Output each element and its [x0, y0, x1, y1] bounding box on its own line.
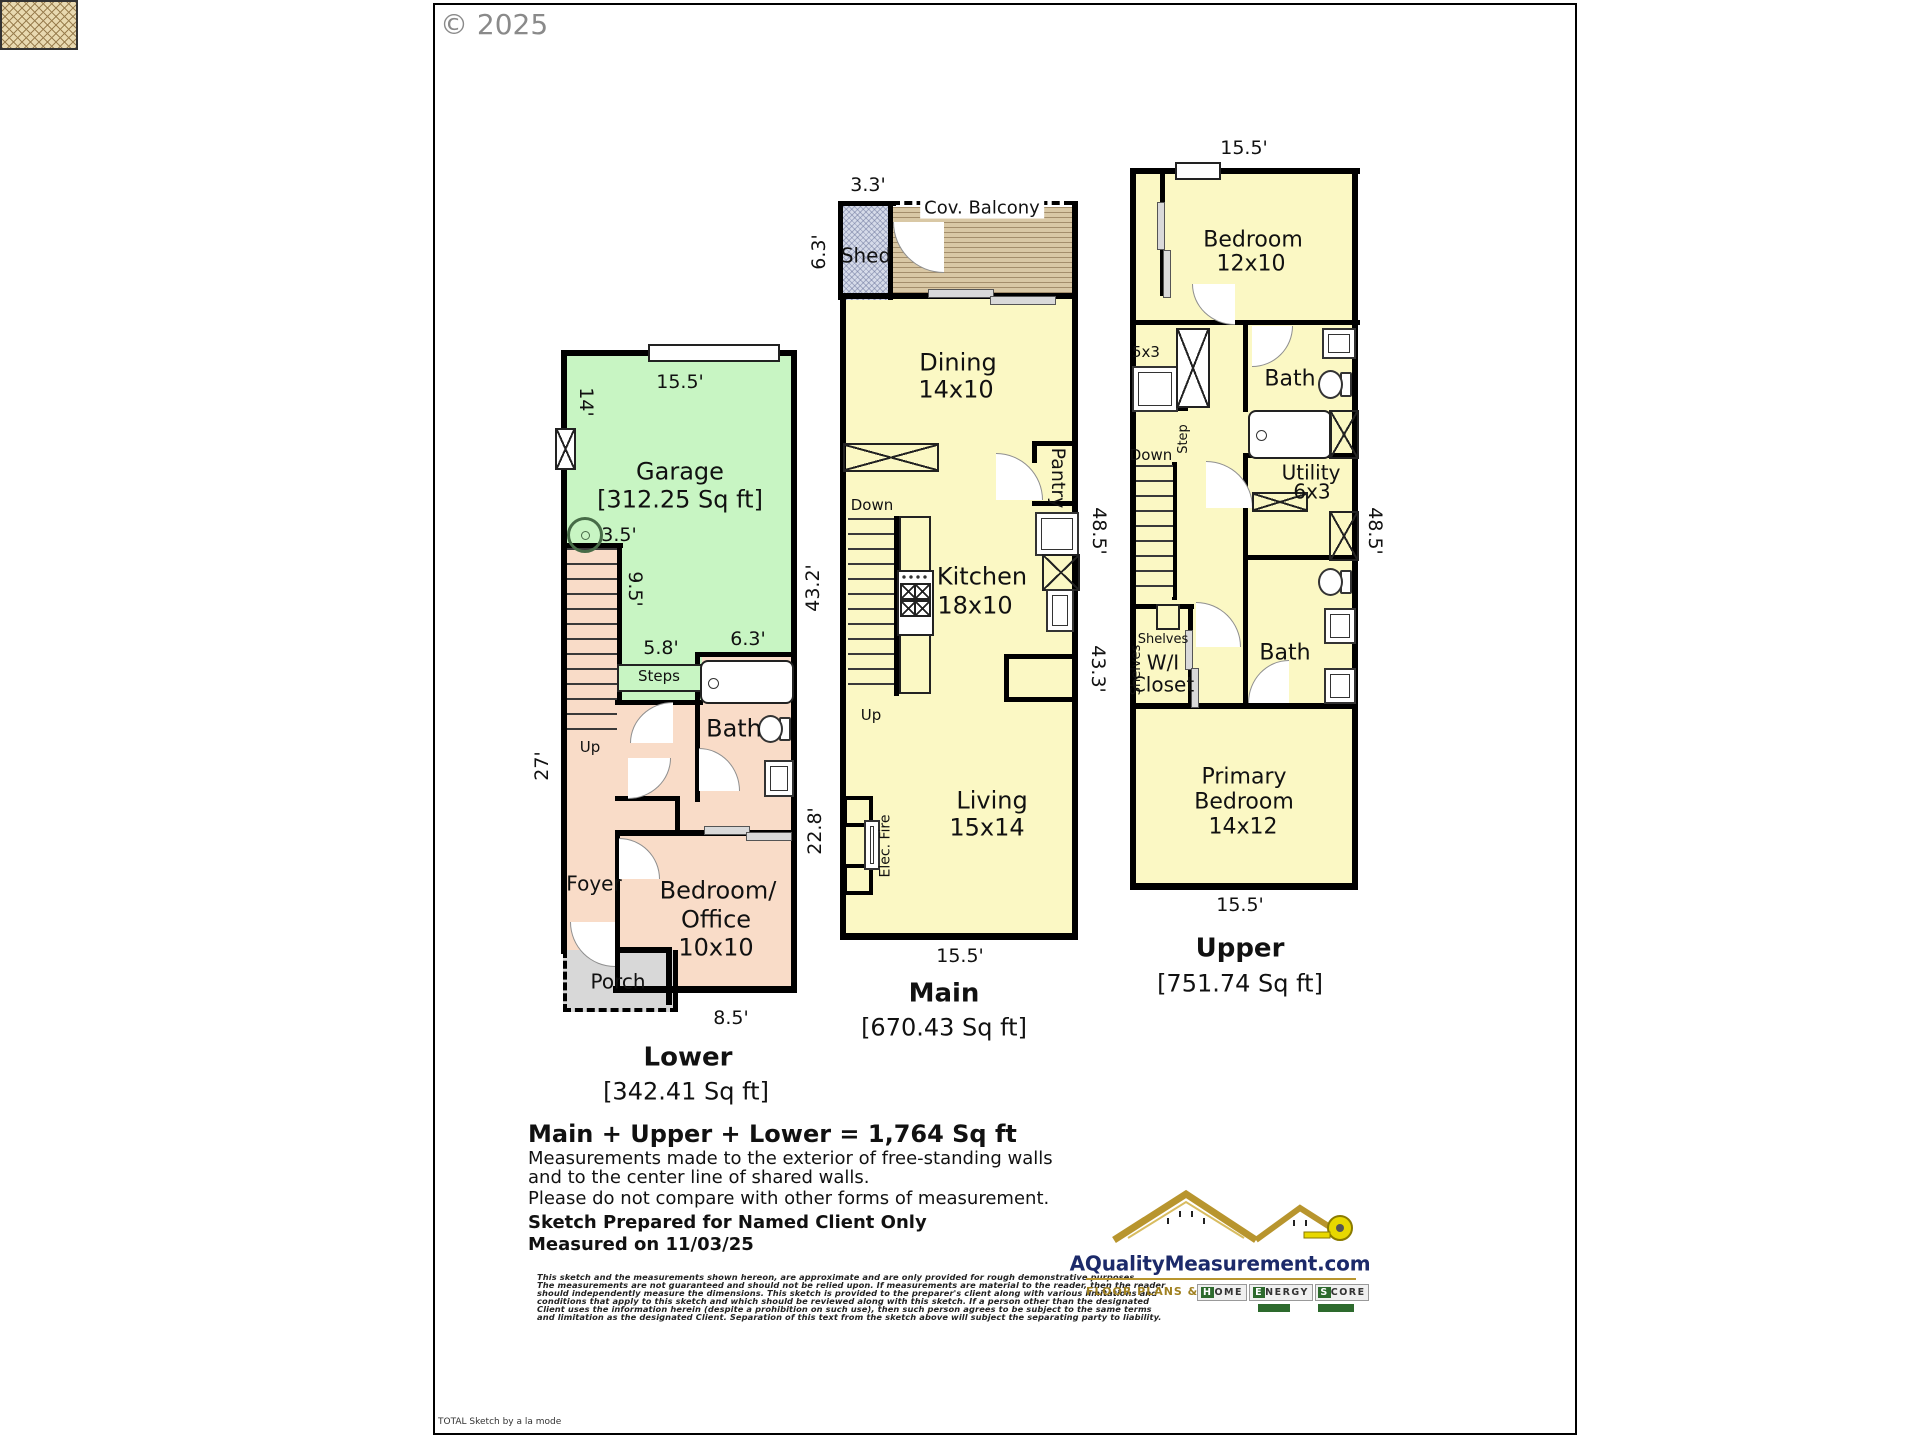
dim-label: 6.3' [810, 234, 830, 269]
room-label-primary: Bedroom [1194, 790, 1294, 813]
wall [1130, 883, 1358, 890]
wall [1032, 441, 1078, 446]
room-label-shed: Shed [841, 246, 891, 267]
room-size-label: 18x10 [937, 593, 1012, 618]
burner-icon [914, 583, 931, 600]
wall [666, 947, 672, 1005]
dim-label: 8.5' [713, 1009, 748, 1029]
floorplan-sketch-page: © 2025 15.5' 14' Garage [312.25 Sq ft] 3… [0, 0, 1920, 1440]
logo-tagline: FLOOR PLANS & [1086, 1285, 1198, 1298]
dim-label: 48.5' [1088, 507, 1108, 555]
room-label-porch: Porch [590, 972, 645, 993]
dim-label: 3.5' [601, 526, 636, 546]
wall [1243, 555, 1248, 705]
step-label: Step [1177, 424, 1191, 454]
disclaimer-line: and limitation as the designated Client.… [537, 1313, 1162, 1321]
room-label-dining: Dining [919, 350, 996, 375]
counter-cabinet-icon [843, 443, 939, 472]
vanity-sink-icon [1324, 668, 1356, 704]
wall [695, 652, 797, 657]
wall [610, 947, 672, 953]
upper-stairs [1136, 465, 1173, 597]
plan-title-upper: Upper [1196, 935, 1285, 962]
garage-area-label: [312.25 Sq ft] [597, 487, 763, 512]
wall [840, 293, 846, 940]
vanity-sink-icon [764, 760, 794, 797]
measurement-note: and to the center line of shared walls. [528, 1167, 869, 1188]
burner-icon [914, 600, 931, 617]
dim-label: 48.5' [1364, 507, 1384, 555]
vanity-sink-icon [1322, 328, 1356, 359]
room-label-kitchen: Kitchen [937, 564, 1027, 589]
water-heater-icon [567, 517, 603, 553]
room-size-label: 14x12 [1208, 815, 1277, 838]
room-label-foyer: Foyer [566, 874, 621, 895]
room-label-garage: Garage [636, 459, 724, 484]
window [1175, 162, 1221, 180]
elec-fire-label: Elec. Fire [879, 815, 894, 878]
down-label: Down [1130, 448, 1173, 464]
down-label: Down [851, 498, 894, 514]
dim-label: 15.5' [1216, 896, 1264, 916]
room-label-bath: Bath [706, 716, 762, 741]
plan-area-main: [670.43 Sq ft] [861, 1015, 1027, 1040]
plan-area-lower: [342.41 Sq ft] [603, 1079, 769, 1104]
room-label-bedroom: Bedroom [1203, 228, 1303, 251]
main-stairs [848, 518, 894, 694]
total-area-line: Main + Upper + Lower = 1,764 Sq ft [528, 1120, 1017, 1148]
dim-label: 22.8' [806, 807, 826, 855]
steps-label: Steps [638, 669, 680, 685]
wall [1032, 441, 1037, 463]
closet-slider-door [1157, 202, 1165, 250]
measured-on-line: Measured on 11/03/25 [528, 1234, 754, 1255]
counter-wall [1004, 697, 1078, 702]
bathtub-icon [700, 660, 794, 704]
total-sketch-watermark: TOTAL Sketch by a la mode [438, 1417, 561, 1427]
counter-wall [1004, 654, 1078, 659]
bifold-doors-icon [1176, 328, 1210, 408]
room-size-label: 6x3 [1293, 482, 1330, 503]
kitchen-sink-icon [1046, 589, 1074, 632]
logo-site-name: AQualityMeasurement.com [1070, 1254, 1371, 1275]
garage-window [648, 344, 780, 362]
room-label-primary: Primary [1201, 765, 1286, 788]
up-label: Up [580, 740, 601, 756]
measurement-note: Measurements made to the exterior of fre… [528, 1148, 1053, 1169]
wall [1243, 322, 1248, 412]
plan-area-upper: [751.74 Sq ft] [1157, 971, 1323, 996]
roofline-logo-graphic [1108, 1176, 1358, 1250]
closet-size-label: 5x3 [1132, 345, 1160, 361]
dim-label: 9.5' [624, 571, 644, 606]
room-label-bedroom-office: Office [681, 907, 751, 932]
linen-closet-icon [1329, 511, 1359, 561]
cabinet-icon [1042, 554, 1080, 591]
sliding-glass-door [990, 296, 1056, 305]
dim-label: 27' [533, 751, 553, 780]
linen-closet-icon [1329, 410, 1359, 459]
washer-dryer-tile-area [0, 0, 78, 50]
room-label-wic: Closet [1132, 675, 1194, 696]
toilet-icon [1318, 370, 1352, 399]
badge-score: SCORE [1315, 1284, 1369, 1301]
room-label-bath: Bath [1259, 641, 1310, 664]
wall [615, 796, 680, 801]
badge-home: HOME [1197, 1284, 1247, 1301]
sliding-glass-door [928, 289, 994, 298]
garage-side-window [555, 428, 576, 470]
lower-stairs [566, 548, 617, 734]
measurement-note: Please do not compare with other forms o… [528, 1188, 1049, 1209]
dim-label: 14' [575, 387, 595, 416]
room-label-bath: Bath [1264, 367, 1315, 390]
toilet-icon [1318, 568, 1352, 596]
closet-slider-door [704, 826, 750, 835]
fridge-icon [1035, 512, 1079, 556]
logo-divider [1086, 1278, 1356, 1280]
toilet-icon [758, 715, 791, 743]
room-label-wic: W/I [1147, 653, 1179, 674]
room-label-pantry: Pantry [1047, 448, 1067, 509]
prepared-for-line: Sketch Prepared for Named Client Only [528, 1212, 927, 1233]
room-label-living: Living [956, 788, 1027, 813]
room-label-balcony: Cov. Balcony [920, 200, 1044, 219]
dim-label: 6.3' [730, 630, 765, 650]
up-label: Up [861, 708, 882, 724]
dim-label: 43.3' [1087, 645, 1107, 693]
dim-label: 43.2' [804, 564, 824, 612]
plan-title-main: Main [909, 980, 980, 1007]
room-size-label: 10x10 [678, 935, 753, 960]
plan-title-lower: Lower [644, 1044, 733, 1071]
closet-notch [1156, 604, 1180, 630]
dim-label: 5.8' [643, 639, 678, 659]
badge-energy: ENERGY [1249, 1284, 1313, 1301]
score-tag [1258, 1304, 1290, 1312]
dim-label: 15.5' [656, 373, 704, 393]
vanity-sink-icon [1132, 366, 1178, 412]
score-tag [1318, 1304, 1354, 1312]
room-size-label: 12x10 [1216, 252, 1285, 275]
copyright-year: © 2025 [440, 8, 548, 41]
closet-slider-door [1163, 250, 1171, 298]
room-size-label: 14x10 [918, 377, 993, 402]
shelves-label: Shelves [1138, 633, 1189, 647]
room-size-label: 15x14 [949, 815, 1024, 840]
vanity-sink-icon [1324, 608, 1356, 644]
wall [840, 933, 1078, 940]
dim-label: 3.3' [850, 176, 885, 196]
bathtub-icon [1248, 410, 1332, 459]
counter-wall [1004, 654, 1009, 702]
room-label-bedroom-office: Bedroom/ [660, 878, 777, 903]
closet-slider-door [746, 832, 792, 841]
dim-label: 15.5' [1220, 139, 1268, 159]
dim-label: 15.5' [936, 947, 984, 967]
range-controls-icon [901, 574, 927, 580]
